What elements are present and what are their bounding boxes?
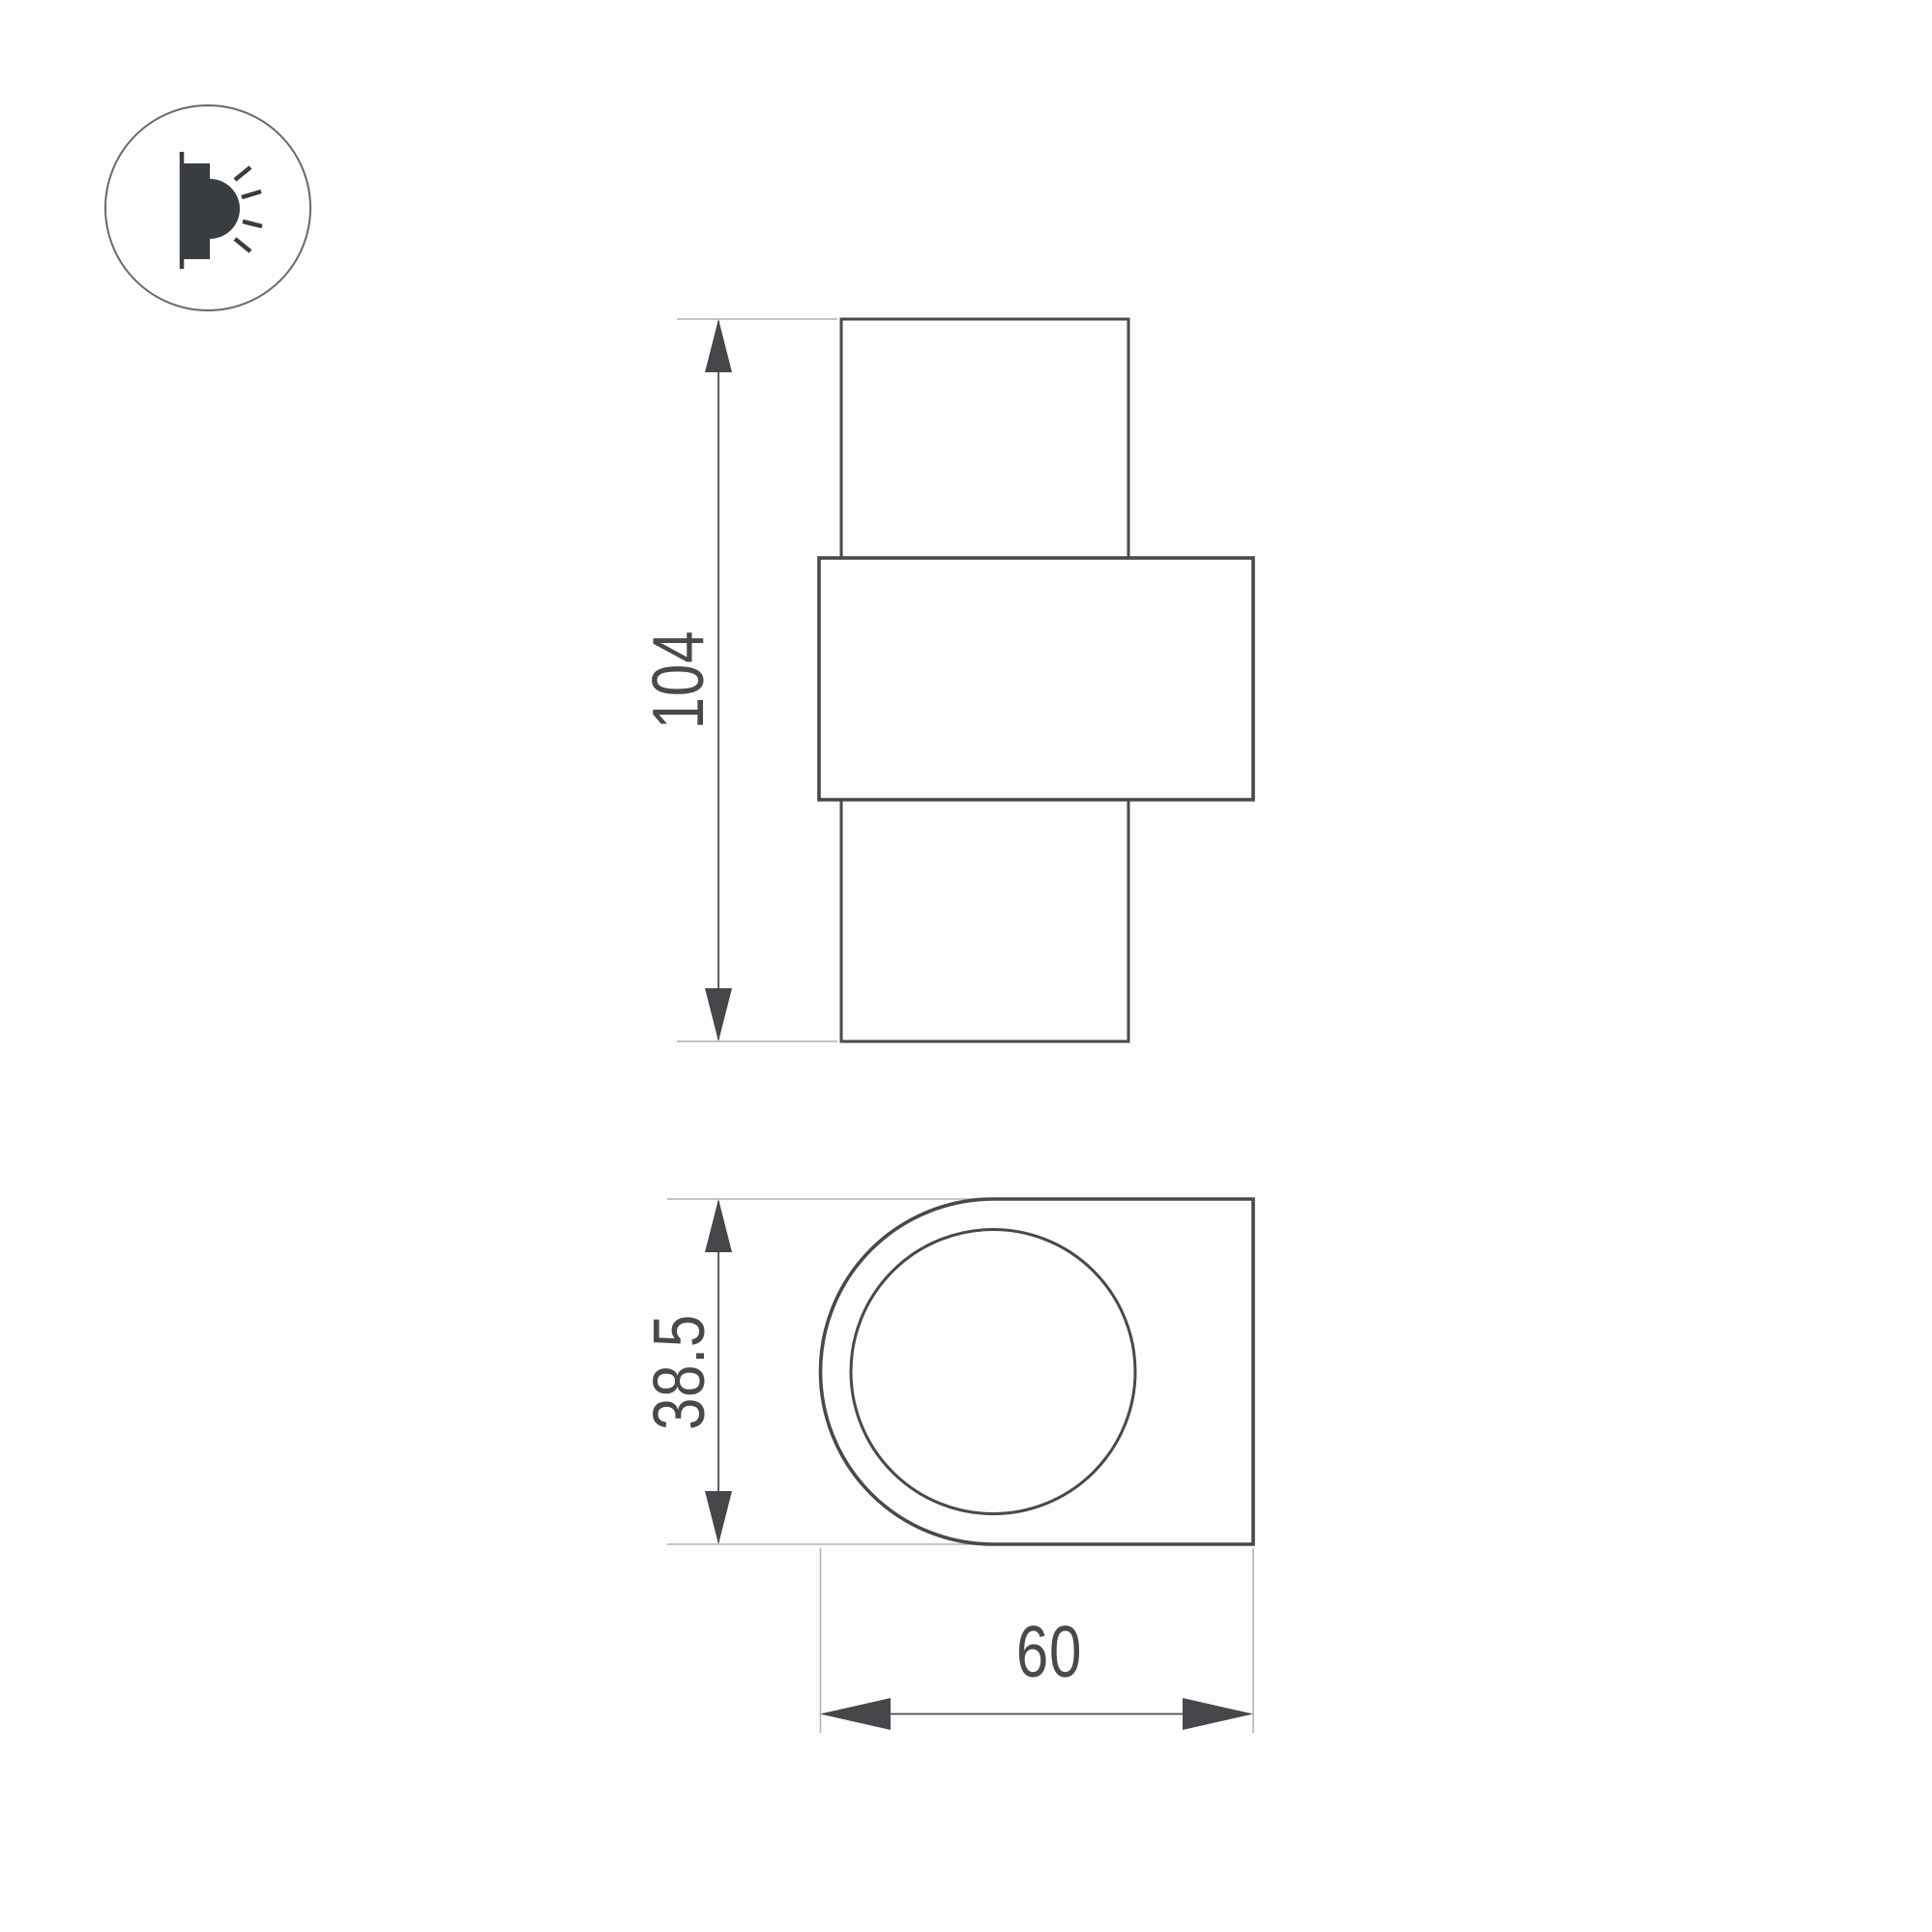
- side-width-arrow-left: [820, 1698, 891, 1730]
- front-height-label: 104: [639, 630, 719, 729]
- side-width-label: 60: [1016, 1613, 1082, 1693]
- side-view: 38.5 60: [640, 1199, 1253, 1733]
- wall-light-icon: [105, 105, 310, 310]
- icon-ray-3: [243, 221, 262, 226]
- side-height-arrow-up: [705, 1199, 732, 1252]
- icon-ray-1: [235, 167, 250, 180]
- side-height-label: 38.5: [640, 1314, 720, 1430]
- front-view: 104: [639, 319, 1253, 1041]
- front-mounting-band: [819, 558, 1253, 800]
- side-height-arrow-down: [705, 1491, 732, 1544]
- icon-ray-2: [242, 191, 261, 197]
- dimension-drawing: 104 38.5 60: [0, 0, 1932, 1932]
- icon-ray-4: [235, 239, 250, 251]
- icon-lamp-body: [184, 163, 210, 259]
- side-body-outline: [821, 1199, 1254, 1544]
- side-width-arrow-right: [1183, 1698, 1253, 1730]
- icon-lamp-lens: [210, 179, 240, 239]
- front-height-arrow-down: [705, 988, 732, 1041]
- front-height-arrow-up: [705, 319, 732, 372]
- drawing-canvas: 104 38.5 60: [0, 0, 1932, 1932]
